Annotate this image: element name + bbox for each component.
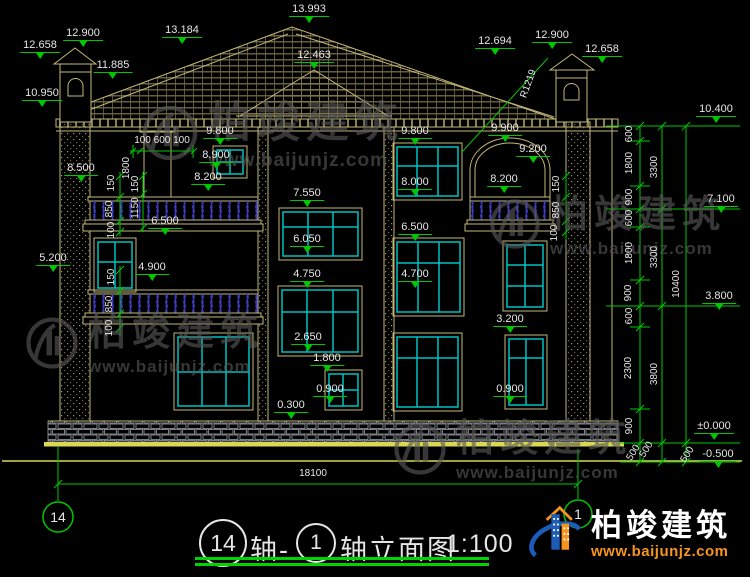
elevation-label: 3.200 (493, 314, 527, 337)
elevation-label: 1.800 (310, 353, 344, 376)
dimension-label: 100 (550, 225, 560, 242)
dimension-label: 3300 (650, 246, 660, 268)
elevation-label: 12.658 (582, 44, 622, 67)
elevation-label: 7.100 (704, 194, 738, 217)
elevation-label: 7.550 (290, 188, 324, 211)
elevation-label: 8.200 (487, 174, 521, 197)
dimension-label: 150 (552, 176, 562, 193)
drawing-scale: 1:100 (446, 530, 514, 559)
dimension-label: 1150 (131, 197, 141, 219)
dimension-label: 1800 (625, 152, 635, 174)
elevation-label: 12.900 (63, 28, 103, 51)
brand-name: 柏竣建筑 (591, 510, 731, 541)
elevation-label: 6.500 (398, 222, 432, 245)
elevation-label: 12.900 (532, 30, 572, 53)
dimension-label: 600 (625, 126, 635, 143)
elevation-label: 4.700 (398, 269, 432, 292)
dimension-label: 18100 (299, 469, 327, 479)
elevation-label: 0.900 (493, 384, 527, 407)
elevation-label: 9.200 (516, 144, 550, 167)
elevation-label: 9.800 (203, 126, 237, 149)
elevation-label: 9.900 (488, 123, 522, 146)
elevation-label: ±0.000 (694, 421, 734, 444)
dimension-label: 600 (625, 210, 635, 227)
elevation-label: 4.900 (135, 262, 169, 285)
elevation-label: 12.658 (20, 40, 60, 63)
elevation-label: 4.750 (290, 269, 324, 292)
dimension-label: 100 (107, 222, 117, 239)
brand-logo-icon (528, 499, 584, 570)
window (393, 333, 462, 411)
elevation-label: 0.900 (313, 384, 347, 407)
elevation-label: 8.200 (191, 172, 225, 195)
elevation-label: 5.200 (36, 253, 70, 276)
dimension-label: 150 (107, 269, 117, 286)
drawing-title: 轴立面图 (340, 528, 456, 567)
elevation-label: 8.500 (64, 163, 98, 186)
elevation-label: 12.463 (294, 50, 334, 73)
dimension-label: 850 (552, 202, 562, 219)
elevation-label: 10.950 (22, 88, 62, 111)
dimension-label: 150 (107, 175, 117, 192)
elevation-label: 12.694 (475, 36, 515, 59)
elevation-label: 13.184 (162, 25, 202, 48)
window (503, 241, 547, 311)
elevation-label: 8.900 (199, 150, 233, 173)
dimension-label: 2300 (624, 357, 634, 379)
dimension-label: 3800 (650, 363, 660, 385)
elevation-label: 3.800 (702, 291, 736, 314)
title-underline (195, 557, 489, 560)
brand-logo: 柏竣建筑 www.baijunjz.com (528, 499, 731, 570)
elevation-label: 6.050 (290, 234, 324, 257)
elevation-label: 10.400 (696, 104, 736, 127)
window (174, 333, 253, 410)
brand-url: www.baijunjz.com (591, 543, 731, 560)
dimension-label: 900 (625, 189, 635, 206)
title-underline (195, 563, 489, 566)
elevation-label: 6.500 (148, 216, 182, 239)
stone-plinth (48, 421, 618, 442)
elevation-label: 8.000 (398, 177, 432, 200)
elevation-label: 13.993 (289, 4, 329, 27)
axis-bubble-left: 14 (50, 509, 66, 525)
elevation-label: 11.885 (94, 60, 133, 83)
elevation-label: 9.800 (398, 126, 432, 149)
dimension-label: 3300 (650, 156, 660, 178)
dimension-label: 600 (625, 308, 635, 325)
title-axis-word: 轴- (250, 528, 290, 567)
dimension-label: 900 (624, 285, 634, 302)
building-elevation-drawing (0, 0, 750, 577)
elevation-label: 0.300 (274, 400, 308, 423)
dimension-label: 100 (105, 320, 115, 337)
elevation-label: -0.500 (699, 449, 736, 472)
dimension-label: 850 (105, 201, 115, 218)
balcony-arch (465, 197, 555, 231)
dimension-label: 100 600 100 (134, 136, 190, 146)
dimension-label: 1800 (625, 242, 635, 264)
dimension-label: 10400 (672, 270, 682, 298)
cad-elevation-page: 柏竣建筑 www.baijunjz.com 柏竣建筑 www.baijunjz.… (0, 0, 750, 577)
dimension-label: 900 (625, 418, 635, 435)
dimension-label: 850 (105, 296, 115, 313)
dimension-label: 150 (131, 176, 141, 193)
